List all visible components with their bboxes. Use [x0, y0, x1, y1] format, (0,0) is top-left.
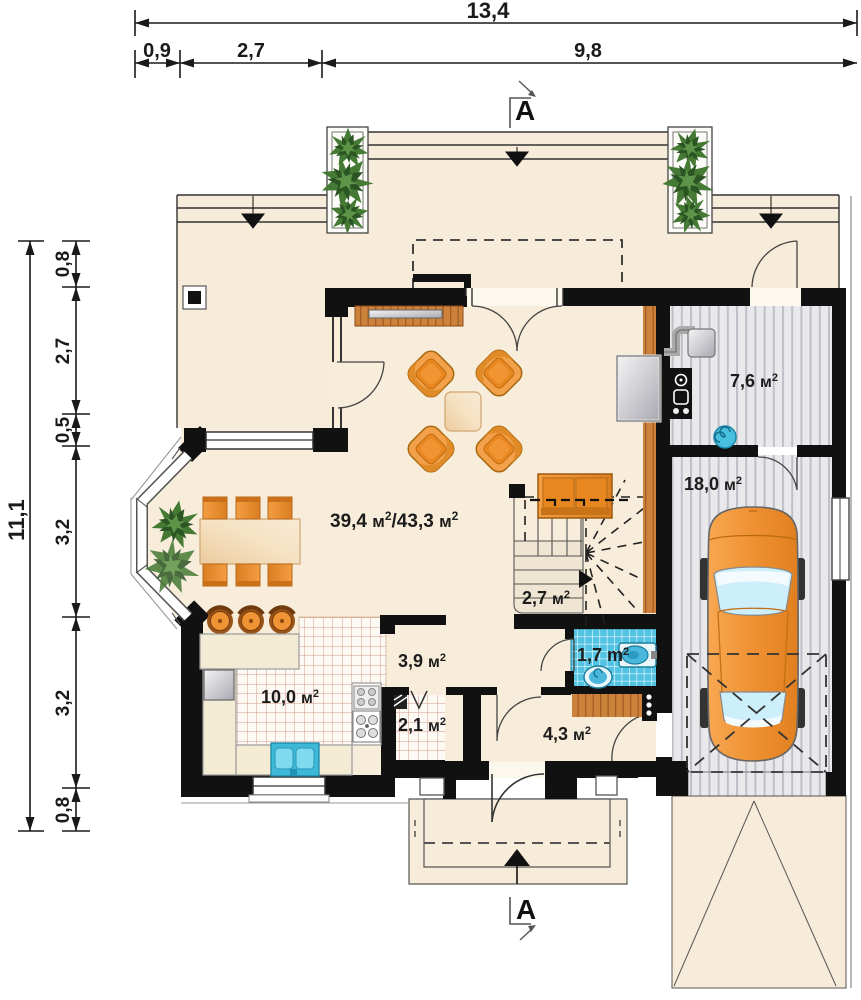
svg-text:3,9 м2: 3,9 м2 — [398, 651, 446, 671]
svg-text:0,5: 0,5 — [53, 416, 74, 443]
svg-text:1,7 m2: 1,7 m2 — [577, 645, 629, 665]
svg-text:A: A — [516, 894, 536, 925]
svg-text:2,7 м2: 2,7 м2 — [522, 588, 570, 608]
svg-text:4,3 м2: 4,3 м2 — [543, 724, 591, 744]
svg-text:A: A — [515, 95, 535, 126]
svg-text:7,6 м2: 7,6 м2 — [730, 371, 778, 391]
svg-text:18,0 м2: 18,0 м2 — [684, 474, 742, 494]
svg-text:9,8: 9,8 — [574, 40, 602, 62]
svg-text:11,1: 11,1 — [4, 499, 29, 541]
svg-text:3,2: 3,2 — [53, 519, 74, 545]
svg-text:2,1 м2: 2,1 м2 — [398, 715, 446, 735]
svg-text:2,7: 2,7 — [237, 40, 265, 62]
svg-text:10,0 м2: 10,0 м2 — [261, 687, 319, 707]
svg-text:39,4 м2/43,3 м2: 39,4 м2/43,3 м2 — [330, 509, 459, 532]
svg-text:13,4: 13,4 — [467, 0, 511, 23]
svg-text:0,8: 0,8 — [53, 797, 74, 823]
svg-text:0,9: 0,9 — [143, 40, 171, 62]
svg-text:2,7: 2,7 — [53, 338, 74, 364]
svg-text:3,2: 3,2 — [53, 690, 74, 716]
svg-text:0,8: 0,8 — [53, 251, 74, 277]
